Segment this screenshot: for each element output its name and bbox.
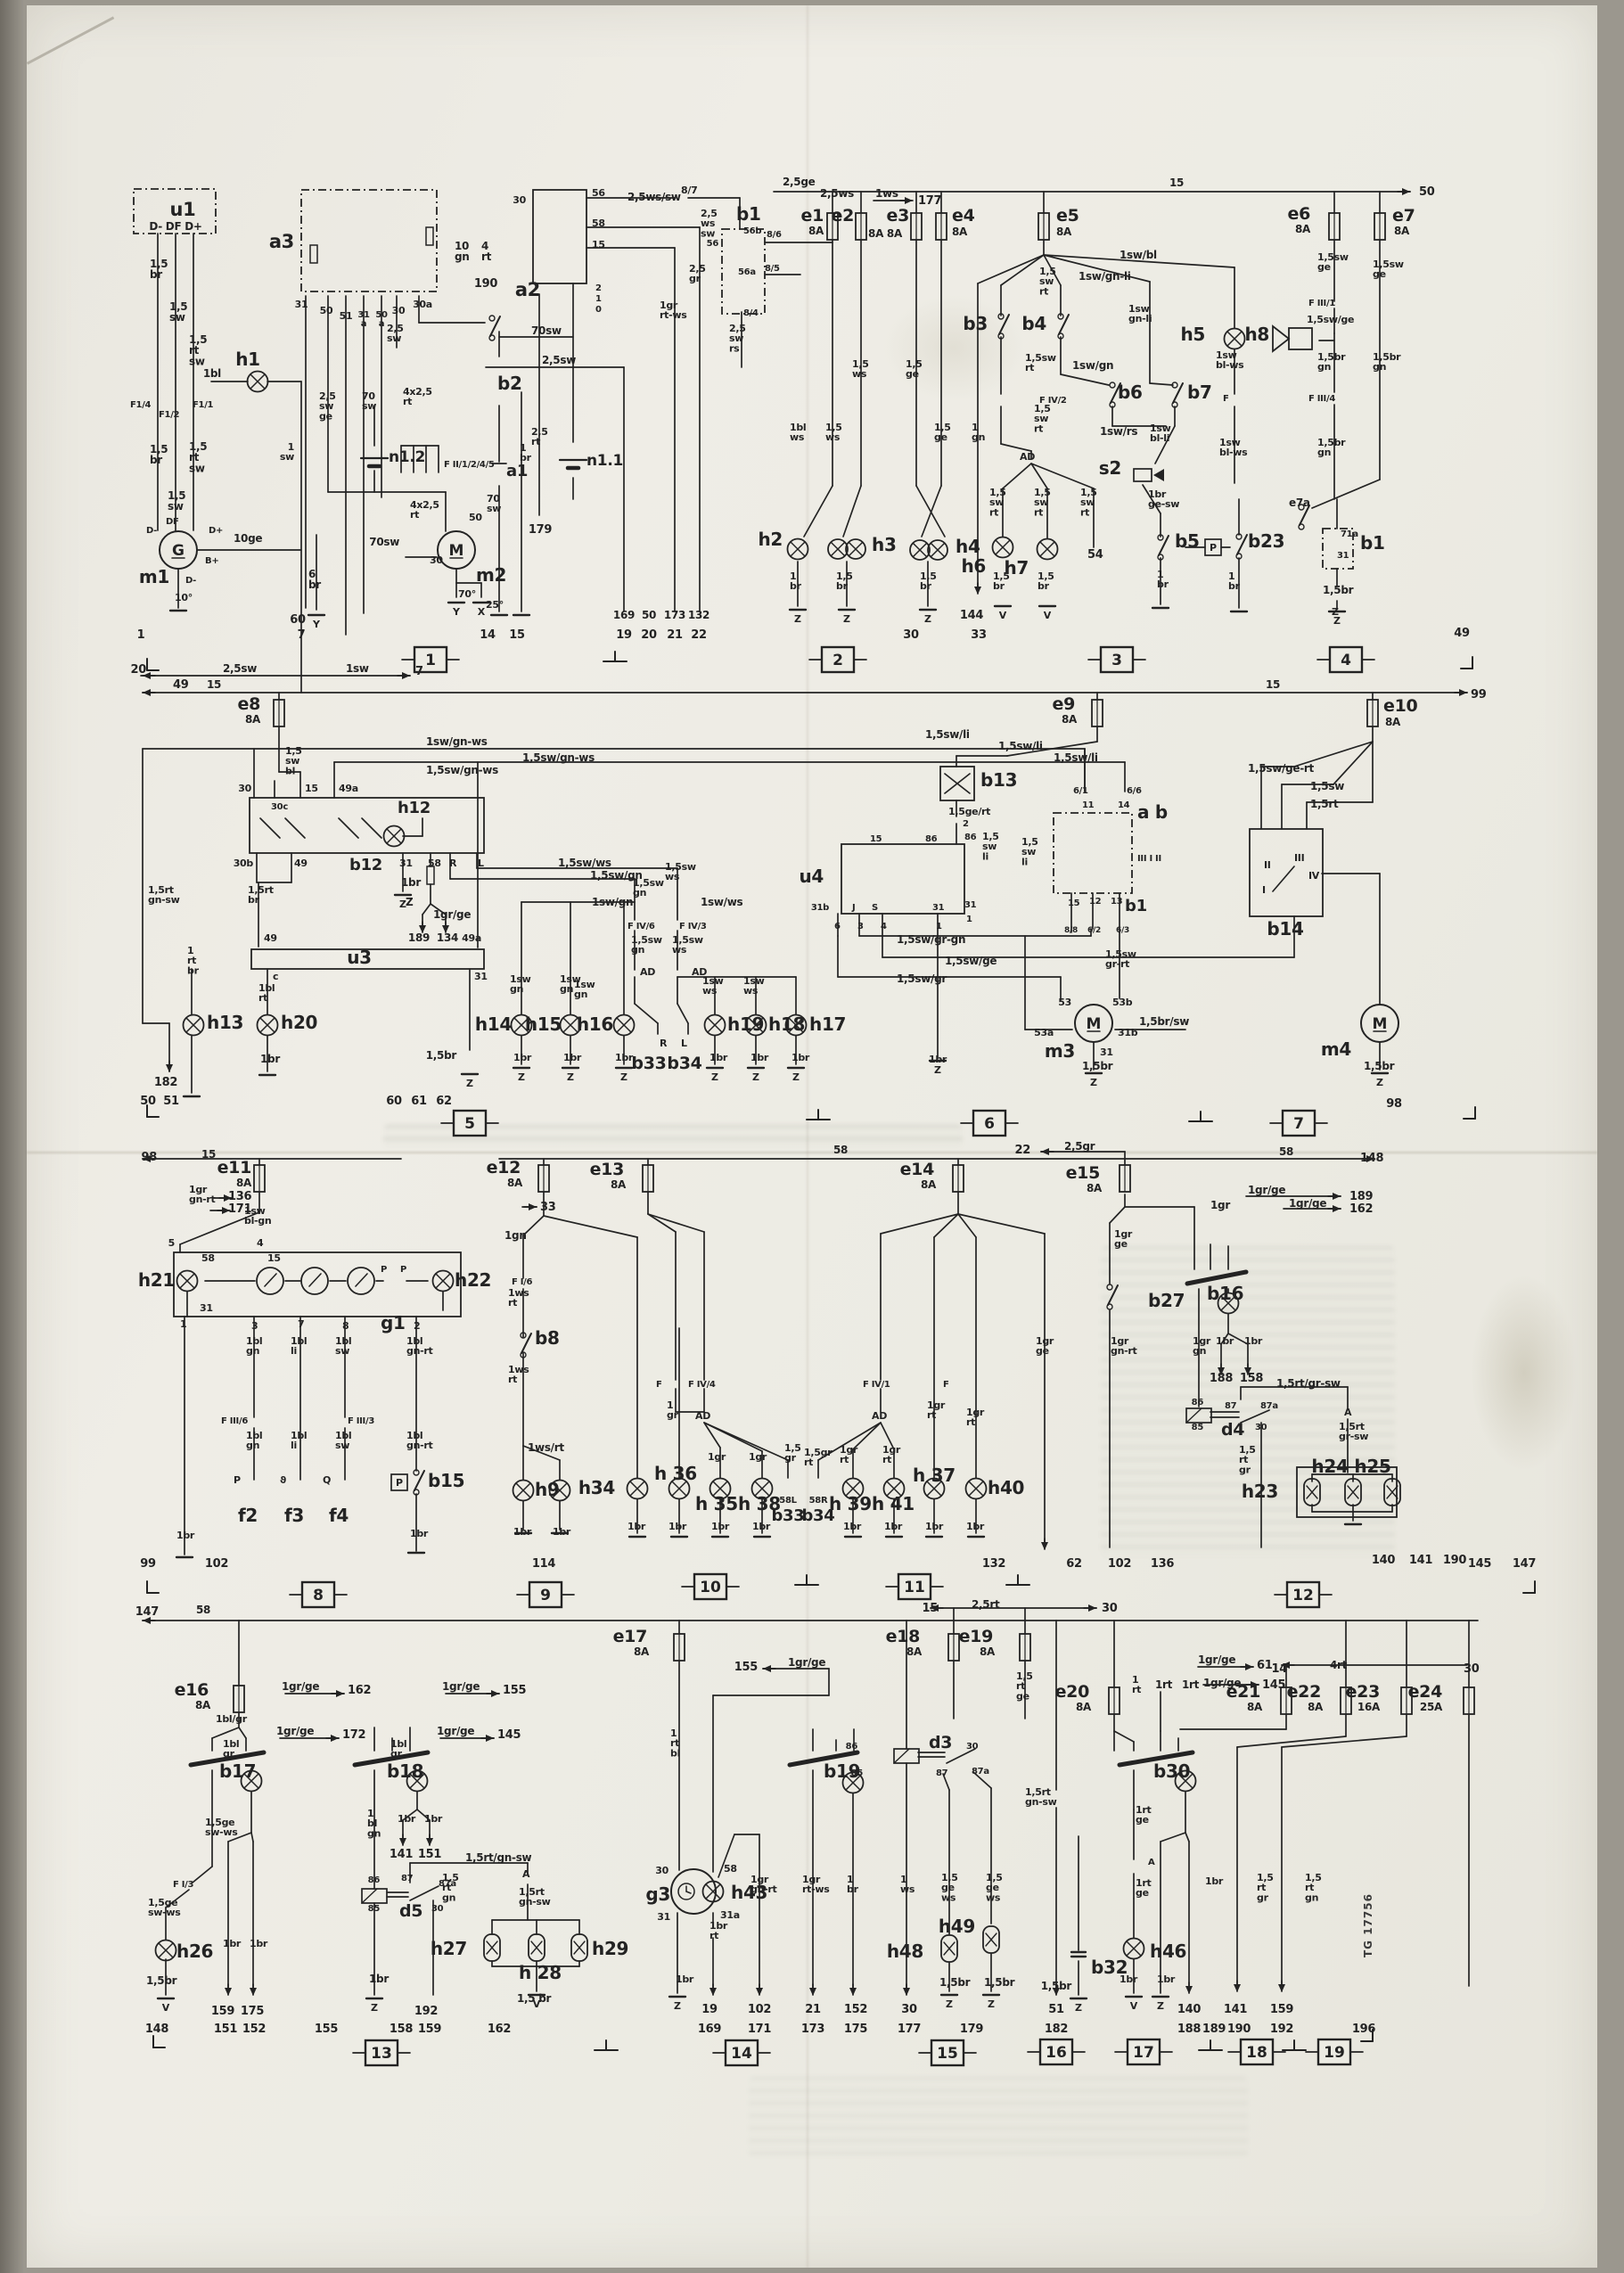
- label: F1/1: [193, 400, 214, 410]
- label: s2: [1099, 457, 1121, 479]
- label: F I/3: [173, 1880, 193, 1890]
- label: h40: [988, 1477, 1024, 1498]
- gauge-needle: [309, 1274, 321, 1286]
- ground-code: Z: [794, 613, 801, 625]
- label: 1: [180, 1318, 186, 1330]
- label: 114: [532, 1557, 555, 1571]
- label: 1rtge: [1136, 1877, 1151, 1899]
- wire: [1001, 444, 1031, 451]
- label: D- DF D+: [149, 220, 201, 233]
- label: 151: [214, 2023, 237, 2036]
- component-box: [174, 1252, 461, 1317]
- label: 49: [1454, 627, 1470, 640]
- label: b34: [667, 1054, 701, 1073]
- label: h8: [1244, 324, 1269, 345]
- label: 31: [399, 858, 413, 869]
- ground-code: V: [1044, 610, 1052, 621]
- arrowhead: [1041, 1148, 1049, 1155]
- section-number: 4: [1341, 652, 1351, 669]
- label: 189: [408, 931, 430, 944]
- label: 1,5 br: [517, 1992, 552, 2005]
- section-number: 17: [1133, 2044, 1154, 2062]
- label: 1grge: [1114, 1228, 1133, 1250]
- wire: [422, 904, 431, 915]
- label: 132: [982, 1557, 1005, 1571]
- label: 1,5sw/gr: [897, 972, 947, 985]
- label: 1,5br: [993, 570, 1010, 592]
- label: 21: [805, 2003, 821, 2016]
- label: F IV/4: [688, 1380, 716, 1390]
- wire: [894, 1749, 909, 1763]
- label: 8A: [634, 1645, 650, 1658]
- label: 14: [1118, 800, 1130, 810]
- label: 30: [513, 194, 526, 206]
- arrowhead: [1333, 1205, 1341, 1212]
- section-number: 13: [371, 2045, 392, 2063]
- label: 1,5br: [150, 443, 168, 466]
- label: 1,5ws: [852, 358, 869, 380]
- label: 87: [1225, 1401, 1237, 1411]
- label: 1blli: [291, 1335, 307, 1357]
- ground-code: Z: [620, 1071, 627, 1083]
- label: 1blgn: [246, 1335, 262, 1357]
- ground-code: Y: [452, 606, 461, 618]
- wire: [648, 1214, 676, 1232]
- label: B+: [205, 556, 218, 566]
- label: 1wsrt: [508, 1364, 529, 1385]
- label: 60: [386, 1095, 402, 1108]
- label: 21: [667, 628, 683, 642]
- label: 50: [320, 305, 333, 316]
- label: 1gr: [667, 1399, 679, 1421]
- ground-code: V: [1130, 2000, 1138, 2012]
- label: 31: [964, 900, 977, 910]
- label: 141: [1224, 2003, 1247, 2016]
- motor-letter: M: [449, 542, 464, 560]
- arrowhead: [1088, 1604, 1096, 1612]
- label: 1,5sw/ge-rt: [1248, 762, 1314, 775]
- label: 2,5gr: [689, 263, 706, 284]
- label: e14: [900, 1160, 935, 1179]
- switch-lever: [1237, 535, 1247, 554]
- label: 49: [294, 858, 308, 869]
- label: 1,5sw: [1310, 780, 1344, 792]
- label: d4: [1221, 1420, 1244, 1440]
- label: e19: [959, 1627, 993, 1646]
- label: 179: [960, 2023, 983, 2036]
- label: 50: [642, 609, 656, 621]
- label: h46: [1150, 1941, 1186, 1962]
- label: 16A: [1357, 1701, 1381, 1713]
- label: n1.2: [389, 448, 425, 466]
- label: e9: [1052, 694, 1075, 714]
- label: e4: [952, 206, 975, 226]
- label: 99: [1471, 688, 1487, 702]
- label: F: [1223, 394, 1229, 404]
- switch-contact: [1110, 382, 1115, 388]
- label: 1,5br: [1364, 1060, 1395, 1072]
- grounds-layer: YYXZZZVVZZZZZZZZZZZZVZVZZZZVZ: [147, 603, 1535, 2050]
- label: 1,5swli: [982, 831, 999, 862]
- label: Z: [406, 896, 414, 908]
- section-number: 19: [1324, 2044, 1345, 2062]
- arrows-layer: [143, 188, 1467, 1996]
- wire: [285, 818, 305, 838]
- arrowhead: [1041, 1542, 1048, 1550]
- arrowhead: [709, 1988, 717, 1996]
- label: h20: [281, 1012, 317, 1033]
- section-number: 6: [984, 1115, 995, 1133]
- label: 1,5br: [836, 570, 853, 592]
- label: 1blrt: [258, 982, 275, 1004]
- label: 1blgn-rt: [406, 1335, 432, 1357]
- arrowhead: [336, 1690, 344, 1697]
- label: F IV/6: [627, 922, 655, 931]
- label: 1,5rtgn-sw: [1025, 1786, 1057, 1808]
- label: IV: [1308, 870, 1320, 882]
- label: b3: [963, 313, 988, 334]
- label: 1,5ws: [825, 422, 842, 443]
- label: 58: [1279, 1145, 1293, 1158]
- label: 1br: [925, 1521, 944, 1532]
- label: 8: [342, 1320, 349, 1332]
- label: 145: [497, 1728, 521, 1742]
- label: 8A: [980, 1645, 996, 1658]
- label: f3: [284, 1505, 304, 1526]
- label: b27: [1148, 1290, 1185, 1311]
- switch-lever: [1159, 536, 1169, 555]
- label: 145: [1468, 1557, 1491, 1571]
- label: 86: [964, 833, 977, 842]
- label: b12: [349, 856, 382, 874]
- wire: [635, 1004, 658, 1023]
- label: 8A: [1087, 1182, 1103, 1194]
- label: 1grrt: [927, 1399, 946, 1421]
- label: h 35: [695, 1493, 738, 1514]
- label: 8/5: [765, 264, 780, 274]
- wire: [1003, 464, 1031, 488]
- label: 1br: [513, 1052, 532, 1063]
- label: f4: [329, 1505, 349, 1526]
- label: h25: [1354, 1456, 1390, 1477]
- label: 10ge: [234, 532, 262, 545]
- label: e11: [217, 1158, 251, 1178]
- arrowhead: [974, 587, 981, 595]
- label: 1gr/ge: [282, 1680, 319, 1693]
- arrowhead: [756, 1988, 763, 1996]
- label: 22: [691, 628, 707, 642]
- inline-fuse-icon: [310, 245, 317, 263]
- ground-code: X: [478, 606, 486, 618]
- label: 1sw: [346, 662, 369, 675]
- label: 1swbl-ws: [1216, 349, 1244, 371]
- label: 1br: [176, 1530, 195, 1541]
- label: F1/2: [159, 410, 180, 420]
- label: L: [478, 858, 484, 869]
- label: 56b: [743, 226, 761, 236]
- label: 3: [251, 1320, 258, 1332]
- label: 19: [701, 2003, 718, 2016]
- label: 1grge: [1036, 1335, 1054, 1357]
- label: 1swbl-li: [1150, 423, 1171, 444]
- label: Z: [1332, 606, 1339, 618]
- label: 71a: [1341, 529, 1358, 539]
- label: 31b: [1118, 1027, 1138, 1038]
- component-box: [841, 844, 964, 914]
- arrowhead: [905, 197, 913, 204]
- label: ϑ: [280, 1474, 286, 1486]
- label: m3: [1045, 1040, 1075, 1062]
- arrowhead: [1402, 188, 1410, 195]
- label: 134: [437, 931, 458, 944]
- wire: [251, 1833, 253, 1842]
- label: 171: [748, 2023, 771, 2036]
- label: 1sw/gn: [1072, 359, 1113, 372]
- ground-code: V: [162, 2002, 170, 2014]
- label: 155: [734, 1661, 758, 1674]
- label: 1,5swrt: [1034, 403, 1051, 434]
- label: 58R: [809, 1496, 828, 1506]
- label: 2,5sw: [542, 354, 576, 366]
- label: h2: [758, 529, 783, 550]
- label: 196: [1352, 2023, 1375, 2036]
- label: 1swws: [743, 975, 765, 997]
- label: 8A: [1385, 716, 1401, 728]
- label: 1br: [398, 1813, 416, 1825]
- label: a3: [269, 231, 294, 252]
- label: b1: [1360, 532, 1385, 554]
- label: h23: [1242, 1481, 1278, 1502]
- label: 1,5sw/ge: [1307, 314, 1354, 325]
- label: 30b: [234, 858, 254, 869]
- label: DF: [166, 517, 179, 527]
- label: 1,5brgn: [1317, 351, 1346, 373]
- label: e10: [1383, 696, 1418, 716]
- label: 177: [918, 194, 941, 208]
- label: h9: [535, 1479, 560, 1500]
- label: 8/8: [1064, 926, 1078, 935]
- label: 1br: [843, 1521, 862, 1532]
- label: n1.1: [586, 452, 623, 470]
- label: 33: [540, 1201, 556, 1214]
- label: 22: [1015, 1144, 1031, 1157]
- label: m4: [1321, 1038, 1351, 1060]
- label: e12: [487, 1158, 521, 1178]
- label: 155: [315, 2023, 338, 2036]
- label: 2,5ws/sw: [627, 191, 681, 203]
- label: 1br: [1216, 1335, 1234, 1347]
- label: 6: [834, 922, 841, 931]
- label: 1grgn-rt: [750, 1874, 776, 1895]
- label: e22: [1287, 1682, 1321, 1702]
- label: Q: [323, 1474, 331, 1486]
- label: 144: [960, 609, 983, 622]
- label: 30: [903, 628, 919, 642]
- label: u3: [347, 947, 372, 968]
- label: 1ws: [900, 1874, 915, 1895]
- label: 53b: [1112, 997, 1133, 1008]
- label: e24: [1408, 1682, 1443, 1702]
- label: 192: [1270, 2023, 1293, 2036]
- label: 8A: [921, 1178, 937, 1191]
- label: e17: [613, 1627, 647, 1646]
- ground-code: Z: [674, 2000, 681, 2012]
- label: 85: [1192, 1423, 1204, 1432]
- label: h 41: [872, 1493, 915, 1514]
- label: 1,5br: [920, 570, 937, 592]
- label: h6: [961, 555, 986, 577]
- arrowhead: [809, 1988, 816, 1996]
- label: e5: [1056, 206, 1079, 226]
- label: 1,5sw/gr-gn: [897, 933, 965, 946]
- label: 1gr: [1210, 1199, 1230, 1211]
- label: 8A: [1308, 1701, 1324, 1713]
- label: 1,5swgn: [633, 877, 664, 899]
- label: 30: [1464, 1662, 1480, 1676]
- label: 182: [1045, 2023, 1068, 2036]
- label: 1,5br: [939, 1976, 971, 1989]
- label: 86: [925, 834, 938, 844]
- label: h 37: [913, 1465, 956, 1486]
- wiring-diagram-canvas: GMMMPPYYXZZZVVZZZZZZZZZZZZVZVZZZZVZ12345…: [0, 0, 1624, 2273]
- label: 1,5sw/li: [1054, 751, 1098, 764]
- label: 2,5swrs: [729, 323, 746, 354]
- label: 1blws: [790, 422, 806, 443]
- label: 50: [469, 512, 482, 523]
- label: 15: [592, 239, 605, 250]
- label: h13: [207, 1012, 243, 1033]
- label: 148: [1360, 1152, 1383, 1165]
- label: AD: [872, 1410, 887, 1422]
- label: AD: [640, 966, 655, 978]
- label: 8A: [1062, 713, 1078, 726]
- label: 51: [163, 1095, 179, 1108]
- label: F: [943, 1380, 949, 1390]
- flasher-bowtie: [1153, 469, 1164, 481]
- switch-lever: [1059, 315, 1069, 334]
- label: 15: [201, 1148, 216, 1161]
- label: 1,5rtsw: [189, 333, 207, 367]
- label: F1/4: [130, 400, 152, 410]
- label: 1br: [847, 1874, 859, 1895]
- label: 1bl: [203, 367, 221, 380]
- label: e8: [237, 694, 260, 714]
- label: 1: [595, 294, 602, 304]
- label: 8A: [952, 226, 968, 238]
- label: 1br: [929, 1054, 947, 1065]
- wire: [362, 1889, 377, 1903]
- label: 173: [664, 609, 685, 621]
- label: 1sw/bl: [1120, 249, 1157, 261]
- label: 152: [844, 2003, 867, 2016]
- label: b23: [1248, 530, 1284, 552]
- label: 1br: [966, 1521, 985, 1532]
- label: 1,5br: [1038, 570, 1054, 592]
- label: c: [273, 971, 278, 982]
- label: 1blli: [291, 1430, 307, 1451]
- label: 136: [1151, 1557, 1174, 1571]
- section-number: 18: [1246, 2044, 1267, 2062]
- label: 1,5rtgr-sw: [1339, 1421, 1368, 1442]
- label: 1sw: [280, 441, 294, 463]
- label: 1grrt-ws: [802, 1874, 830, 1895]
- label: b1: [736, 203, 761, 225]
- label: 15: [267, 1252, 281, 1264]
- wire: [410, 1886, 439, 1900]
- label: 8A: [195, 1699, 211, 1711]
- label: 1br: [752, 1521, 771, 1532]
- label: AD: [1020, 451, 1035, 463]
- label: A: [1344, 1407, 1352, 1418]
- label: 2,5swge: [319, 390, 336, 422]
- label: 8A: [507, 1177, 523, 1189]
- label: 145: [1262, 1678, 1285, 1692]
- label: a1: [506, 462, 528, 480]
- label: 98: [142, 1151, 158, 1164]
- label: 1swbl-ws: [1219, 437, 1248, 458]
- label: 2,5rt: [531, 426, 548, 447]
- label: 1,5ge: [906, 358, 923, 380]
- label: 56a: [738, 267, 756, 277]
- label: 8A: [1076, 1701, 1092, 1713]
- section-number: 7: [1293, 1115, 1304, 1133]
- label: 15: [1169, 176, 1184, 189]
- ground-code: Z: [1376, 1077, 1383, 1088]
- label: 1,5sw/li: [925, 728, 970, 741]
- switch-lever: [1173, 383, 1183, 403]
- label: 70sw: [369, 536, 399, 548]
- label: 1swbl-gn: [244, 1205, 271, 1227]
- ground-code: Z: [946, 1998, 953, 2010]
- label: 159: [1270, 2003, 1293, 2016]
- wire: [1161, 1833, 1185, 1842]
- label: 1rt: [1132, 1674, 1141, 1695]
- wire: [212, 1727, 239, 1738]
- label: 50: [1419, 185, 1435, 199]
- label: F IV/3: [679, 922, 707, 931]
- label: h21: [138, 1269, 175, 1291]
- label: F III/6: [221, 1416, 248, 1426]
- label: 4x2,5rt: [410, 499, 439, 521]
- label: b14: [1267, 918, 1303, 940]
- label: e2: [831, 206, 854, 226]
- label: m2: [476, 564, 506, 586]
- label: h26: [176, 1941, 213, 1962]
- label: 2,5rt: [972, 1598, 1000, 1611]
- label: h 36: [654, 1463, 697, 1484]
- label: 1rtbr: [187, 945, 200, 976]
- label: 1ws: [875, 187, 898, 200]
- label: 1sw/gn-li: [1079, 270, 1131, 283]
- label: 1gr/ge: [442, 1680, 480, 1693]
- label: 1grrt: [840, 1444, 858, 1465]
- motor-letter: M: [1087, 1015, 1102, 1033]
- label: 15: [923, 1602, 939, 1615]
- label: b2: [497, 373, 522, 394]
- label: 2,5sw: [387, 323, 404, 344]
- label: 1br: [1157, 1973, 1176, 1985]
- ground-code: Z: [466, 1078, 473, 1089]
- label: 1swgn-li: [1128, 303, 1152, 324]
- label: 8A: [808, 225, 824, 237]
- label: 1wsrt: [508, 1287, 529, 1309]
- label: 1br: [627, 1521, 646, 1532]
- label: a b: [1137, 801, 1168, 823]
- label: b16: [1207, 1283, 1243, 1304]
- label: 152: [242, 2023, 266, 2036]
- label: 140: [1372, 1554, 1395, 1567]
- label: 1,5rt: [1310, 798, 1339, 810]
